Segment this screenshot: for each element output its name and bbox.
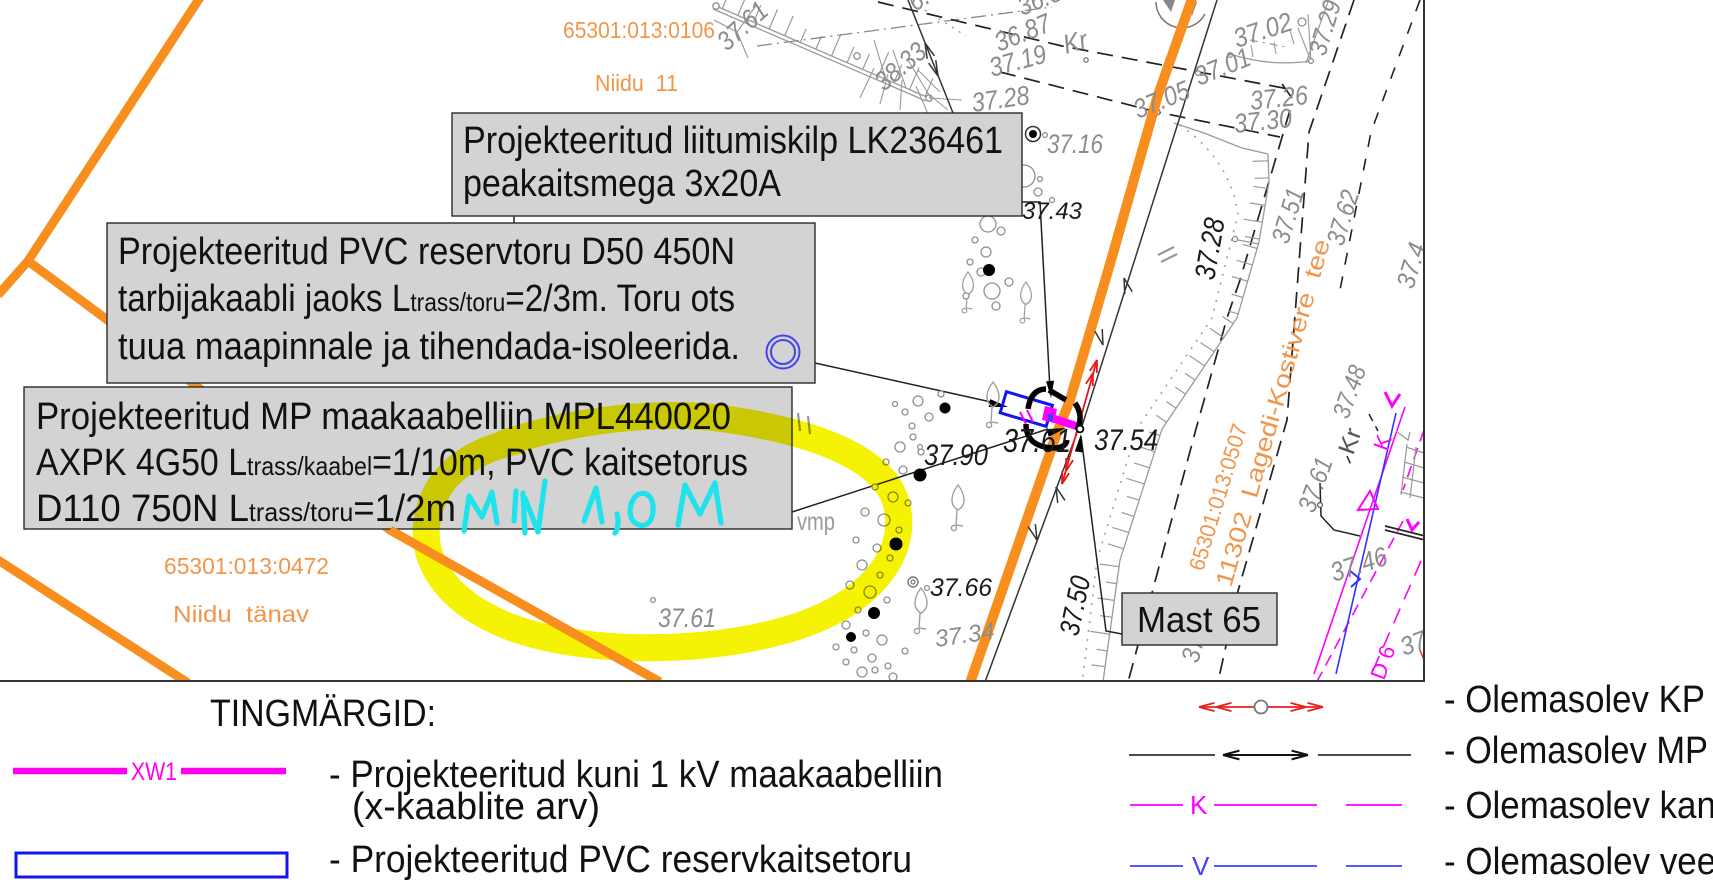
svg-text:37.61: 37.61 [1291,453,1338,516]
svg-text:37.28: 37.28 [1189,216,1231,283]
svg-text:Kr: Kr [1333,424,1367,458]
svg-text:Projekteeritud liitumiskilp LK: Projekteeritud liitumiskilp LK236461 [463,120,1003,162]
svg-text:65301:013:0472: 65301:013:0472 [164,553,329,579]
svg-text:Projekteeritud PVC reservtoru: Projekteeritud PVC reservtoru D50 450N [118,231,735,273]
svg-text:- Olemasolev veetorustik: - Olemasolev veetorustik [1444,841,1713,883]
svg-text:TINGMÄRGID:: TINGMÄRGID: [210,693,436,735]
svg-text:37.61: 37.61 [1003,422,1071,459]
svg-text:37.28: 37.28 [970,80,1032,118]
svg-text:37.66: 37.66 [930,574,992,602]
svg-text:XW1: XW1 [131,758,177,786]
svg-text:D 6: D 6 [1365,642,1400,683]
svg-text:37.30: 37.30 [1232,103,1293,139]
svg-text:37: 37 [1396,624,1432,662]
svg-text:37.90: 37.90 [924,439,988,472]
svg-text:K: K [1190,790,1208,820]
svg-text:K: K [1368,431,1397,454]
svg-text:37.54: 37.54 [1094,424,1158,457]
svg-text:37.29: 37.29 [1302,0,1347,59]
svg-text:37.4: 37.4 [1390,239,1432,292]
svg-text:Kr: Kr [1060,24,1092,59]
svg-text:37.16: 37.16 [1047,129,1104,159]
svg-text:37.62: 37.62 [1320,186,1365,249]
svg-text:D110 750N Ltrass/toru=1/2m: D110 750N Ltrass/toru=1/2m [36,488,456,530]
svg-text:Niidu 11: Niidu 11 [595,70,678,96]
svg-text:Niidu tänav: Niidu tänav [173,601,310,627]
svg-text:- Olemasolev MP: - Olemasolev MP [1444,730,1708,772]
svg-text:- Olemasolev KP: - Olemasolev KP [1444,679,1705,721]
svg-text:vmp: vmp [797,508,835,536]
svg-text:37.61: 37.61 [658,603,716,633]
svg-text:- Olemasolev kanalisatsioon: - Olemasolev kanalisatsioon [1444,785,1713,827]
svg-text:65301:013:0106: 65301:013:0106 [563,17,715,43]
svg-text:AXPK 4G50 Ltrass/kaabel=1/10m,: AXPK 4G50 Ltrass/kaabel=1/10m, PVC kaits… [36,442,748,484]
svg-text:peakaitsmega 3x20A: peakaitsmega 3x20A [463,163,782,205]
svg-text:(x-kaablite arv): (x-kaablite arv) [352,786,600,828]
svg-text:- Projekteeritud PVC reservkai: - Projekteeritud PVC reservkaitsetoru [329,839,912,881]
svg-text:37.01: 37.01 [1190,42,1255,92]
svg-text:38.33: 38.33 [869,36,933,96]
svg-text:11302 Lagedi-Kostivere tee: 11302 Lagedi-Kostivere tee [1211,236,1336,589]
svg-text:V: V [1192,851,1210,881]
svg-text:tuua maapinnale ja tihendada-i: tuua maapinnale ja tihendada-isoleerida. [118,326,740,368]
svg-text:37.48: 37.48 [1327,362,1372,422]
svg-text:37.51: 37.51 [1265,184,1310,246]
svg-text:Mast 65: Mast 65 [1137,599,1261,640]
svg-text:37.50: 37.50 [1054,573,1097,638]
svg-text:37.43: 37.43 [1022,198,1083,225]
